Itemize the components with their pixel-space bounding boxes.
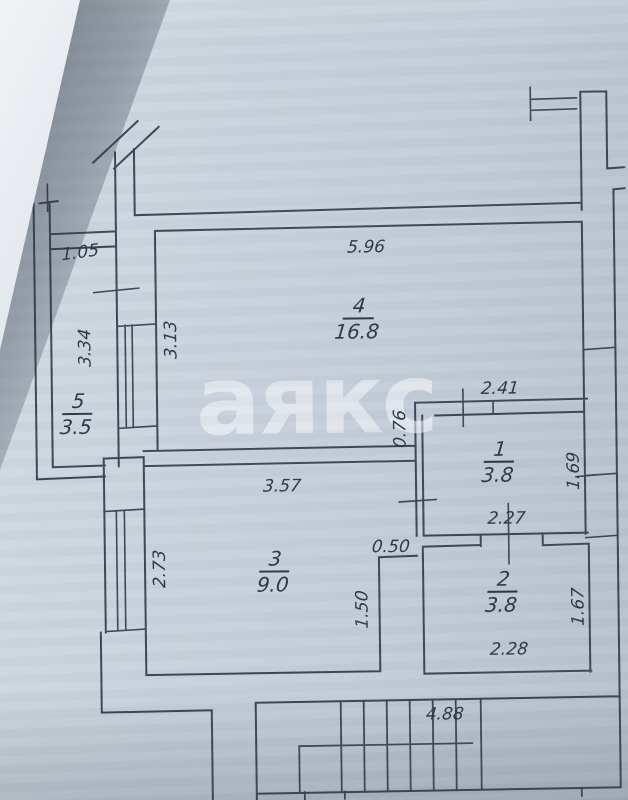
room-area: 3.8 (481, 464, 515, 486)
dimension-label-0-76: 0.76 (390, 409, 410, 449)
floorplan-drawing: аякс 1.05 3.34 3.13 5.96 2.41 0.76 1.69 … (0, 0, 628, 800)
dimension-label-3-57: 3.57 (262, 476, 302, 496)
dimension-label-3-13: 3.13 (161, 320, 181, 360)
dimension-label-4-88: 4.88 (425, 704, 465, 724)
room-number: 2 (487, 567, 520, 592)
dimension-label-5-96: 5.96 (346, 237, 386, 257)
room-area: 16.8 (334, 320, 381, 343)
dimension-ticks (46, 87, 599, 570)
dimension-label-2-73: 2.73 (150, 549, 170, 589)
dimension-label-1-69: 1.69 (564, 451, 584, 491)
room-number: 4 (343, 294, 376, 319)
room-label-1: 1 3.8 (481, 438, 517, 486)
room-area: 3.5 (59, 416, 93, 438)
room-area: 9.0 (256, 573, 290, 595)
room-number: 3 (259, 547, 292, 572)
dimension-label-2-27: 2.27 (487, 508, 527, 528)
room-number: 1 (483, 438, 516, 463)
dimension-label-2-28: 2.28 (489, 639, 529, 659)
dimension-label-1-67: 1.67 (568, 587, 588, 627)
room-number: 5 (62, 390, 95, 415)
room-label-4: 4 16.8 (334, 294, 383, 343)
dimension-label-0-50: 0.50 (371, 537, 411, 557)
room-label-2: 2 3.8 (484, 567, 520, 615)
dimension-label-1-50: 1.50 (352, 590, 372, 630)
floorplan-photo: аякс 1.05 3.34 3.13 5.96 2.41 0.76 1.69 … (0, 0, 628, 800)
room-label-3: 3 9.0 (256, 547, 292, 595)
dimension-label-3-34: 3.34 (75, 328, 95, 368)
room-label-5: 5 3.5 (59, 390, 95, 438)
dimension-label-2-41: 2.41 (480, 378, 520, 398)
room-area: 3.8 (484, 594, 518, 616)
